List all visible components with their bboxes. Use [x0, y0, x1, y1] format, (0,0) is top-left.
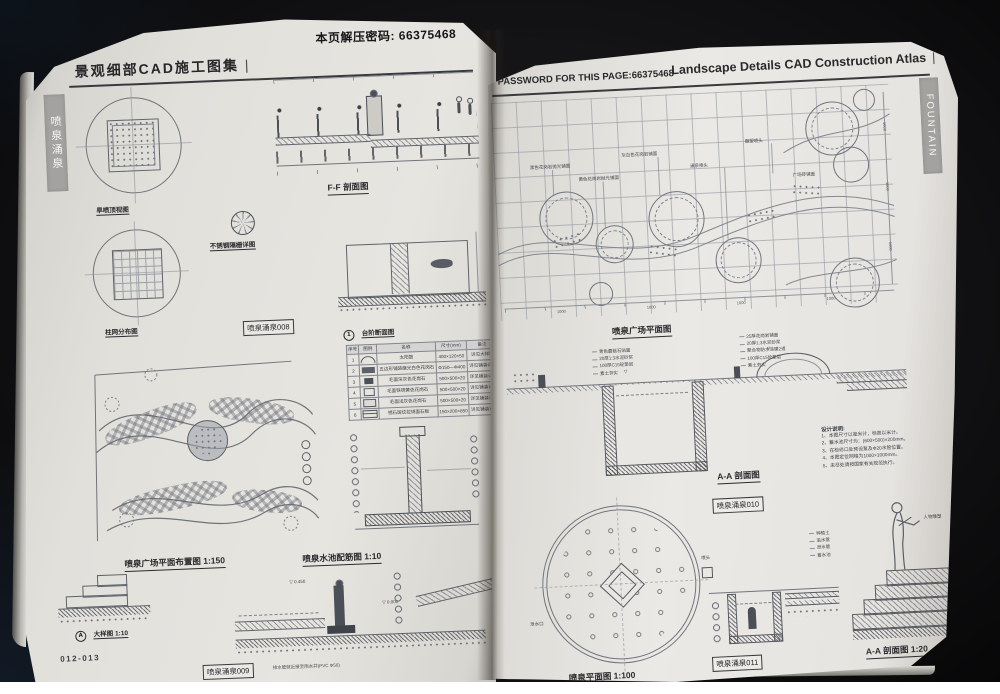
left-side-tab: 喷泉涌泉 — [44, 94, 69, 192]
label-grate-detail: 不锈钢隔栅详图 — [210, 239, 256, 252]
human-figure — [456, 96, 463, 113]
plaza-plan-drawing — [86, 352, 322, 553]
dimension-value: 1000 — [885, 182, 890, 191]
rebar-diagram-drawing — [341, 423, 495, 541]
label-column-grid: 柱网分布图 — [105, 325, 138, 337]
right-side-tab: FOUNTAIN — [919, 77, 943, 174]
plan-annotation: 雕塑喷头 — [745, 138, 763, 145]
left-page-content: 本页解压密码: 66375468 景观细部CAD施工图集| 喷泉涌泉 旱喷顶视图 — [33, 19, 509, 682]
dry-fountain-top-view-drawing — [84, 95, 184, 195]
right-header-title: Landscape Details CAD Construction Atlas — [671, 51, 927, 77]
rebar-callout-column — [349, 433, 360, 513]
grate-detail-drawing — [230, 211, 255, 236]
right-side-tab-label: FOUNTAIN — [924, 93, 938, 157]
page-number: 012-013 — [60, 653, 100, 664]
planting-mound — [512, 371, 537, 386]
pit-sculpture — [748, 607, 757, 629]
human-figure — [467, 98, 474, 115]
nozzle-plan-drawing: 喷头 泄水口 — [539, 502, 705, 668]
elevation-mark: ▽ — [767, 346, 771, 352]
statue-note: 人物雕塑 — [923, 514, 941, 521]
legend-swatch — [362, 367, 375, 374]
header-divider-mark: | — [932, 50, 936, 64]
legend-swatch — [363, 410, 378, 419]
nozzle-annotation: 喷头 — [701, 555, 710, 561]
right-page: PASSWORD FOR THIS PAGE:66375468 Landscap… — [488, 40, 958, 682]
label-detail-a: A 大样图 1:10 — [75, 622, 128, 642]
fountain-section-drawing: ▽ 0.450 ▽ 0.000 — [233, 571, 501, 662]
dimension-value: 1000 — [888, 242, 893, 251]
label-fountain-plan: 喷泉平面图 1:100 — [569, 669, 636, 686]
dimension-value: 1000 — [557, 309, 566, 314]
label-plaza-plan-right: 喷泉广场平面图 — [612, 323, 672, 340]
step-section-drawing — [336, 231, 487, 317]
label-step-section: 1 台阶断面图 — [343, 321, 395, 341]
legend-swatch — [363, 399, 376, 408]
label-rebar-plan: 喷泉水池配筋图 1:10 — [302, 550, 381, 567]
elevation-mark: ▽ 0.450 — [289, 579, 305, 586]
violinist-statue — [875, 499, 924, 573]
detail-callout-column — [711, 601, 721, 645]
photo-background: 本页解压密码: 66375468 景观细部CAD施工图集| 喷泉涌泉 旱喷顶视图 — [0, 0, 1000, 682]
ref-box-008: 喷泉涌泉008 — [243, 319, 294, 336]
dimension-value: 1000 — [882, 122, 887, 131]
small-reservoir-pit — [727, 592, 781, 642]
detail-a-drawing — [57, 567, 151, 627]
right-page-header: Landscape Details CAD Construction Atlas… — [671, 51, 923, 77]
dimension-value: 1000 — [647, 304, 656, 309]
fountain-sculpture-elevation — [366, 95, 384, 136]
plaza-gridded-plan-drawing: 黑色花岗岩抛光铺面 黄色花岗岩抛光铺面 灰白色花岗岩铺面 涌泉喷头 雕塑喷头 广… — [491, 84, 899, 321]
legend-swatch — [361, 355, 376, 363]
left-side-tab-label: 喷泉涌泉 — [47, 115, 65, 172]
left-page-header: 景观细部CAD施工图集| — [74, 55, 251, 82]
header-divider-mark: | — [245, 57, 251, 73]
curb-block — [538, 375, 546, 388]
legend-swatch — [364, 378, 373, 384]
book-spine — [477, 30, 505, 680]
step-section-number: 1 — [343, 330, 354, 341]
label-top-view: 旱喷顶视图 — [96, 204, 129, 216]
password-label: PASSWORD FOR THIS PAGE:66375468 — [497, 68, 674, 88]
fountain-pedestal — [333, 585, 345, 627]
detail-a-number: A — [75, 631, 86, 642]
legend-swatch — [364, 388, 375, 396]
column-grid-plan-drawing — [91, 228, 182, 319]
section-annotation-stack: 种植土 溢水管 泄水管 蓄水池 — [804, 529, 831, 559]
left-page: 本页解压密码: 66375468 景观细部CAD施工图集| 喷泉涌泉 旱喷顶视图 — [26, 6, 496, 682]
dimension-value: 1000 — [737, 300, 746, 305]
plan-annotation: 广场砖铺面 — [792, 171, 815, 178]
label-ff-section: F-F 剖面图 — [327, 180, 369, 196]
drain-pipe-note: 排水管就近接至雨水井(PVC Φ50) — [273, 662, 340, 671]
open-book: 本页解压密码: 66375468 景观细部CAD施工图集| 喷泉涌泉 旱喷顶视图 — [0, 0, 1000, 682]
reservoir-pit — [602, 381, 706, 474]
handwritten-password-note: 本页解压密码: 66375468 — [315, 25, 456, 47]
left-header-title: 景观细部CAD施工图集 — [74, 57, 239, 80]
ref-box-009: 喷泉涌泉009 — [203, 663, 254, 680]
ff-section-drawing — [273, 71, 482, 184]
statue-steps-drawing — [850, 567, 963, 644]
ref-box-010: 喷泉涌泉010 — [712, 496, 763, 513]
pool-detail-drawing — [708, 561, 842, 659]
elevation-mark: ▽ — [624, 369, 628, 375]
dimension-value: 1000 — [826, 296, 835, 301]
label-aa-section: A-A 剖面图 — [717, 468, 760, 484]
ref-box-011: 喷泉涌泉011 — [712, 655, 763, 672]
label-aa-section-20: A-A 剖面图 1:20 — [866, 642, 929, 659]
design-notes: 设计说明: 1、本图尺寸以毫米计，标高以米计。 2、蓄水池尺寸为：(600×50… — [821, 419, 955, 471]
nozzle-annotation: 泄水口 — [530, 621, 544, 628]
right-page-content: PASSWORD FOR THIS PAGE:66375468 Landscap… — [481, 47, 969, 694]
plan-annotation: 涌泉喷头 — [690, 163, 708, 170]
section-callout-column — [393, 571, 403, 627]
curb-block — [734, 366, 741, 378]
